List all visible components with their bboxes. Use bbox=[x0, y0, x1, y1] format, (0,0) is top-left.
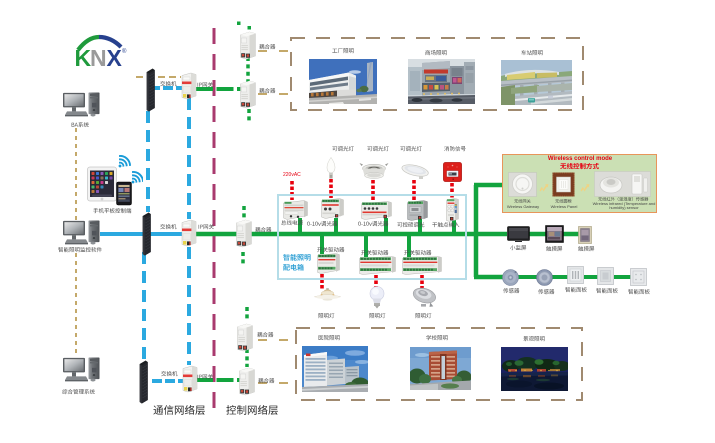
svg-text:K: K bbox=[75, 45, 92, 71]
svg-text:X: X bbox=[107, 45, 123, 71]
svg-text:®: ® bbox=[122, 48, 127, 55]
svg-text:N: N bbox=[90, 45, 107, 71]
